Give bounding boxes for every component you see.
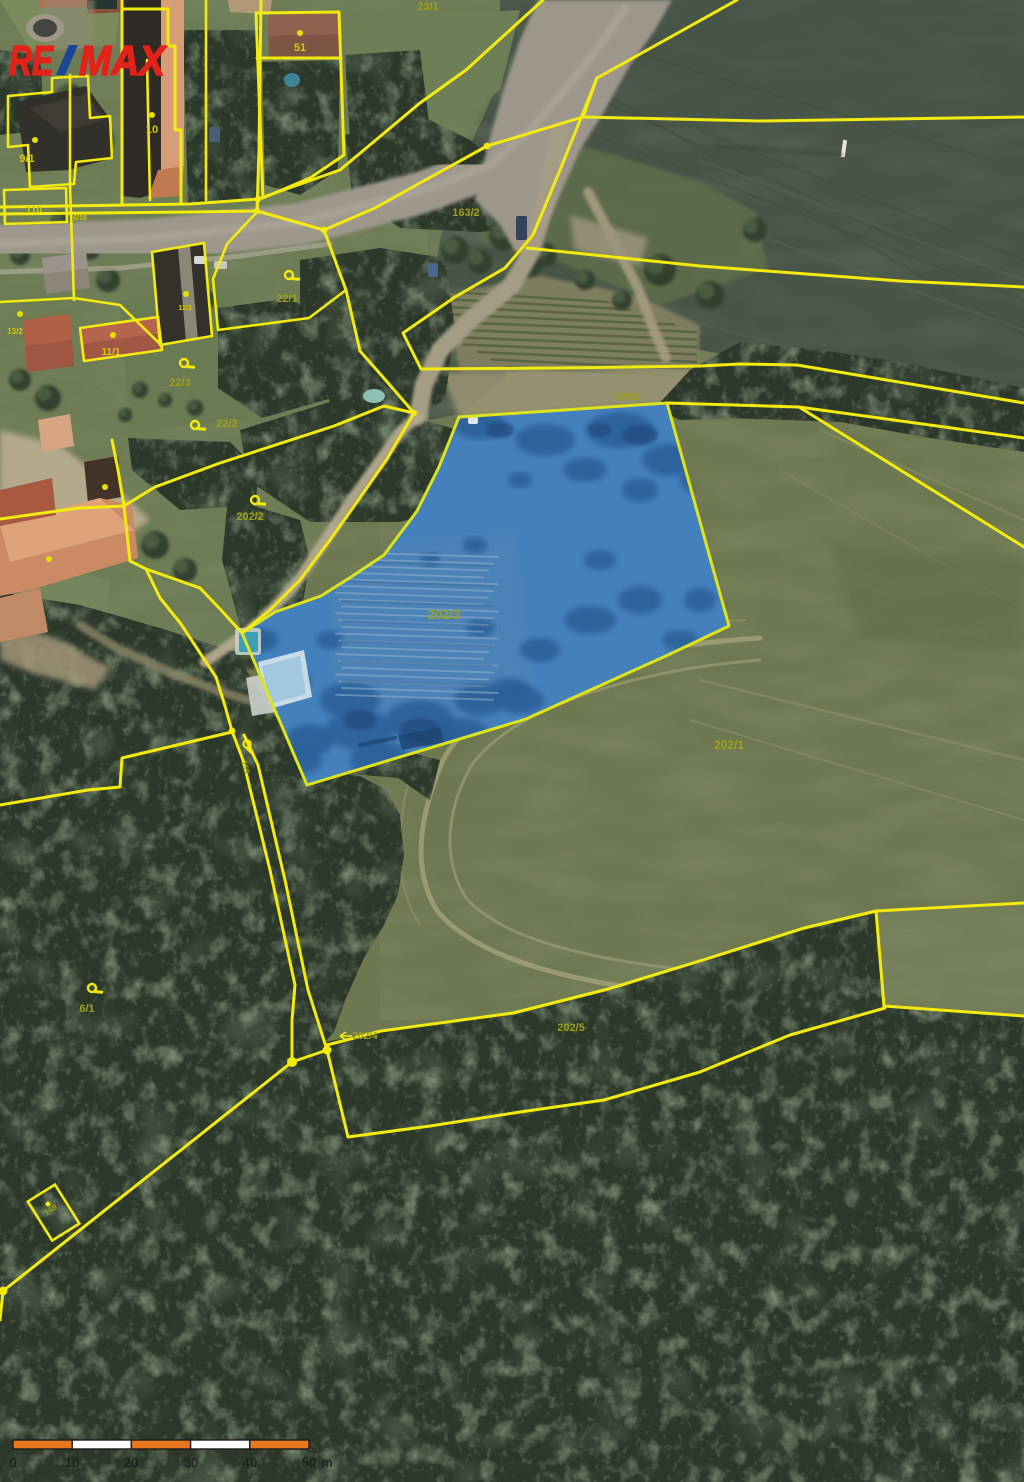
- svg-text:10: 10: [146, 124, 158, 136]
- svg-text:22/2: 22/2: [216, 418, 237, 430]
- svg-text:9/1: 9/1: [19, 153, 34, 165]
- svg-text:13/2: 13/2: [7, 327, 23, 336]
- svg-text:110: 110: [26, 205, 43, 216]
- svg-text:0: 0: [9, 1455, 16, 1470]
- svg-text:11/3: 11/3: [178, 305, 191, 312]
- svg-text:6/1: 6/1: [79, 1003, 94, 1015]
- svg-text:50: 50: [302, 1455, 316, 1470]
- svg-text:m: m: [322, 1455, 333, 1470]
- svg-text:205/2: 205/2: [614, 392, 639, 403]
- svg-text:202/1: 202/1: [714, 738, 744, 752]
- svg-text:202/4: 202/4: [352, 1031, 377, 1042]
- svg-text:6/18: 6/18: [73, 215, 87, 222]
- svg-text:22/3: 22/3: [169, 377, 190, 389]
- svg-text:202/2: 202/2: [236, 511, 264, 523]
- svg-text:30: 30: [184, 1455, 198, 1470]
- svg-text:23/1: 23/1: [417, 1, 438, 13]
- svg-text:RE: RE: [9, 37, 54, 84]
- svg-text:40: 40: [243, 1455, 257, 1470]
- svg-text:MAX: MAX: [79, 37, 168, 84]
- svg-text:10: 10: [65, 1455, 79, 1470]
- svg-text:163/2: 163/2: [452, 207, 480, 219]
- svg-text:51: 51: [294, 42, 306, 54]
- svg-text:202/3: 202/3: [428, 607, 461, 622]
- svg-text:20: 20: [124, 1455, 138, 1470]
- svg-text:202/5: 202/5: [557, 1022, 585, 1034]
- svg-text:22/1: 22/1: [276, 293, 297, 305]
- svg-text:11/1: 11/1: [102, 347, 121, 358]
